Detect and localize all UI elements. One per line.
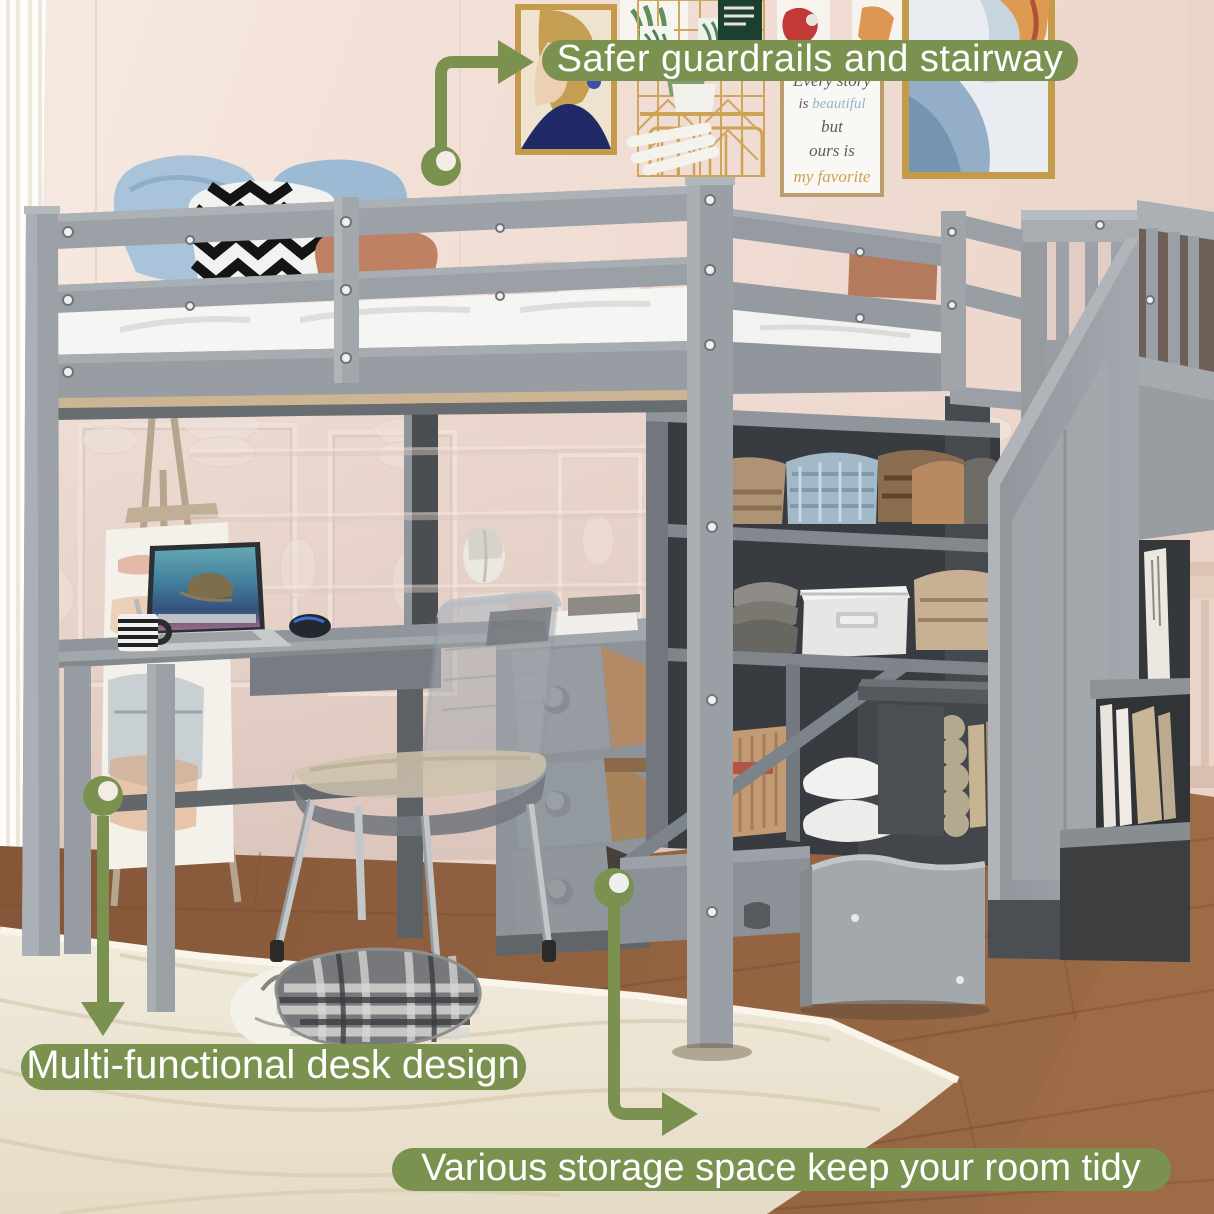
svg-text:is beautiful: is beautiful (798, 96, 865, 112)
svg-text:Safer guardrails and stairway: Safer guardrails and stairway (557, 38, 1064, 80)
svg-text:ours is: ours is (809, 141, 855, 160)
svg-text:but: but (821, 117, 844, 136)
svg-text:Various storage space keep you: Various storage space keep your room tid… (421, 1147, 1141, 1189)
svg-text:Multi-functional desk design: Multi-functional desk design (26, 1043, 520, 1087)
svg-text:my favorite: my favorite (794, 167, 871, 186)
